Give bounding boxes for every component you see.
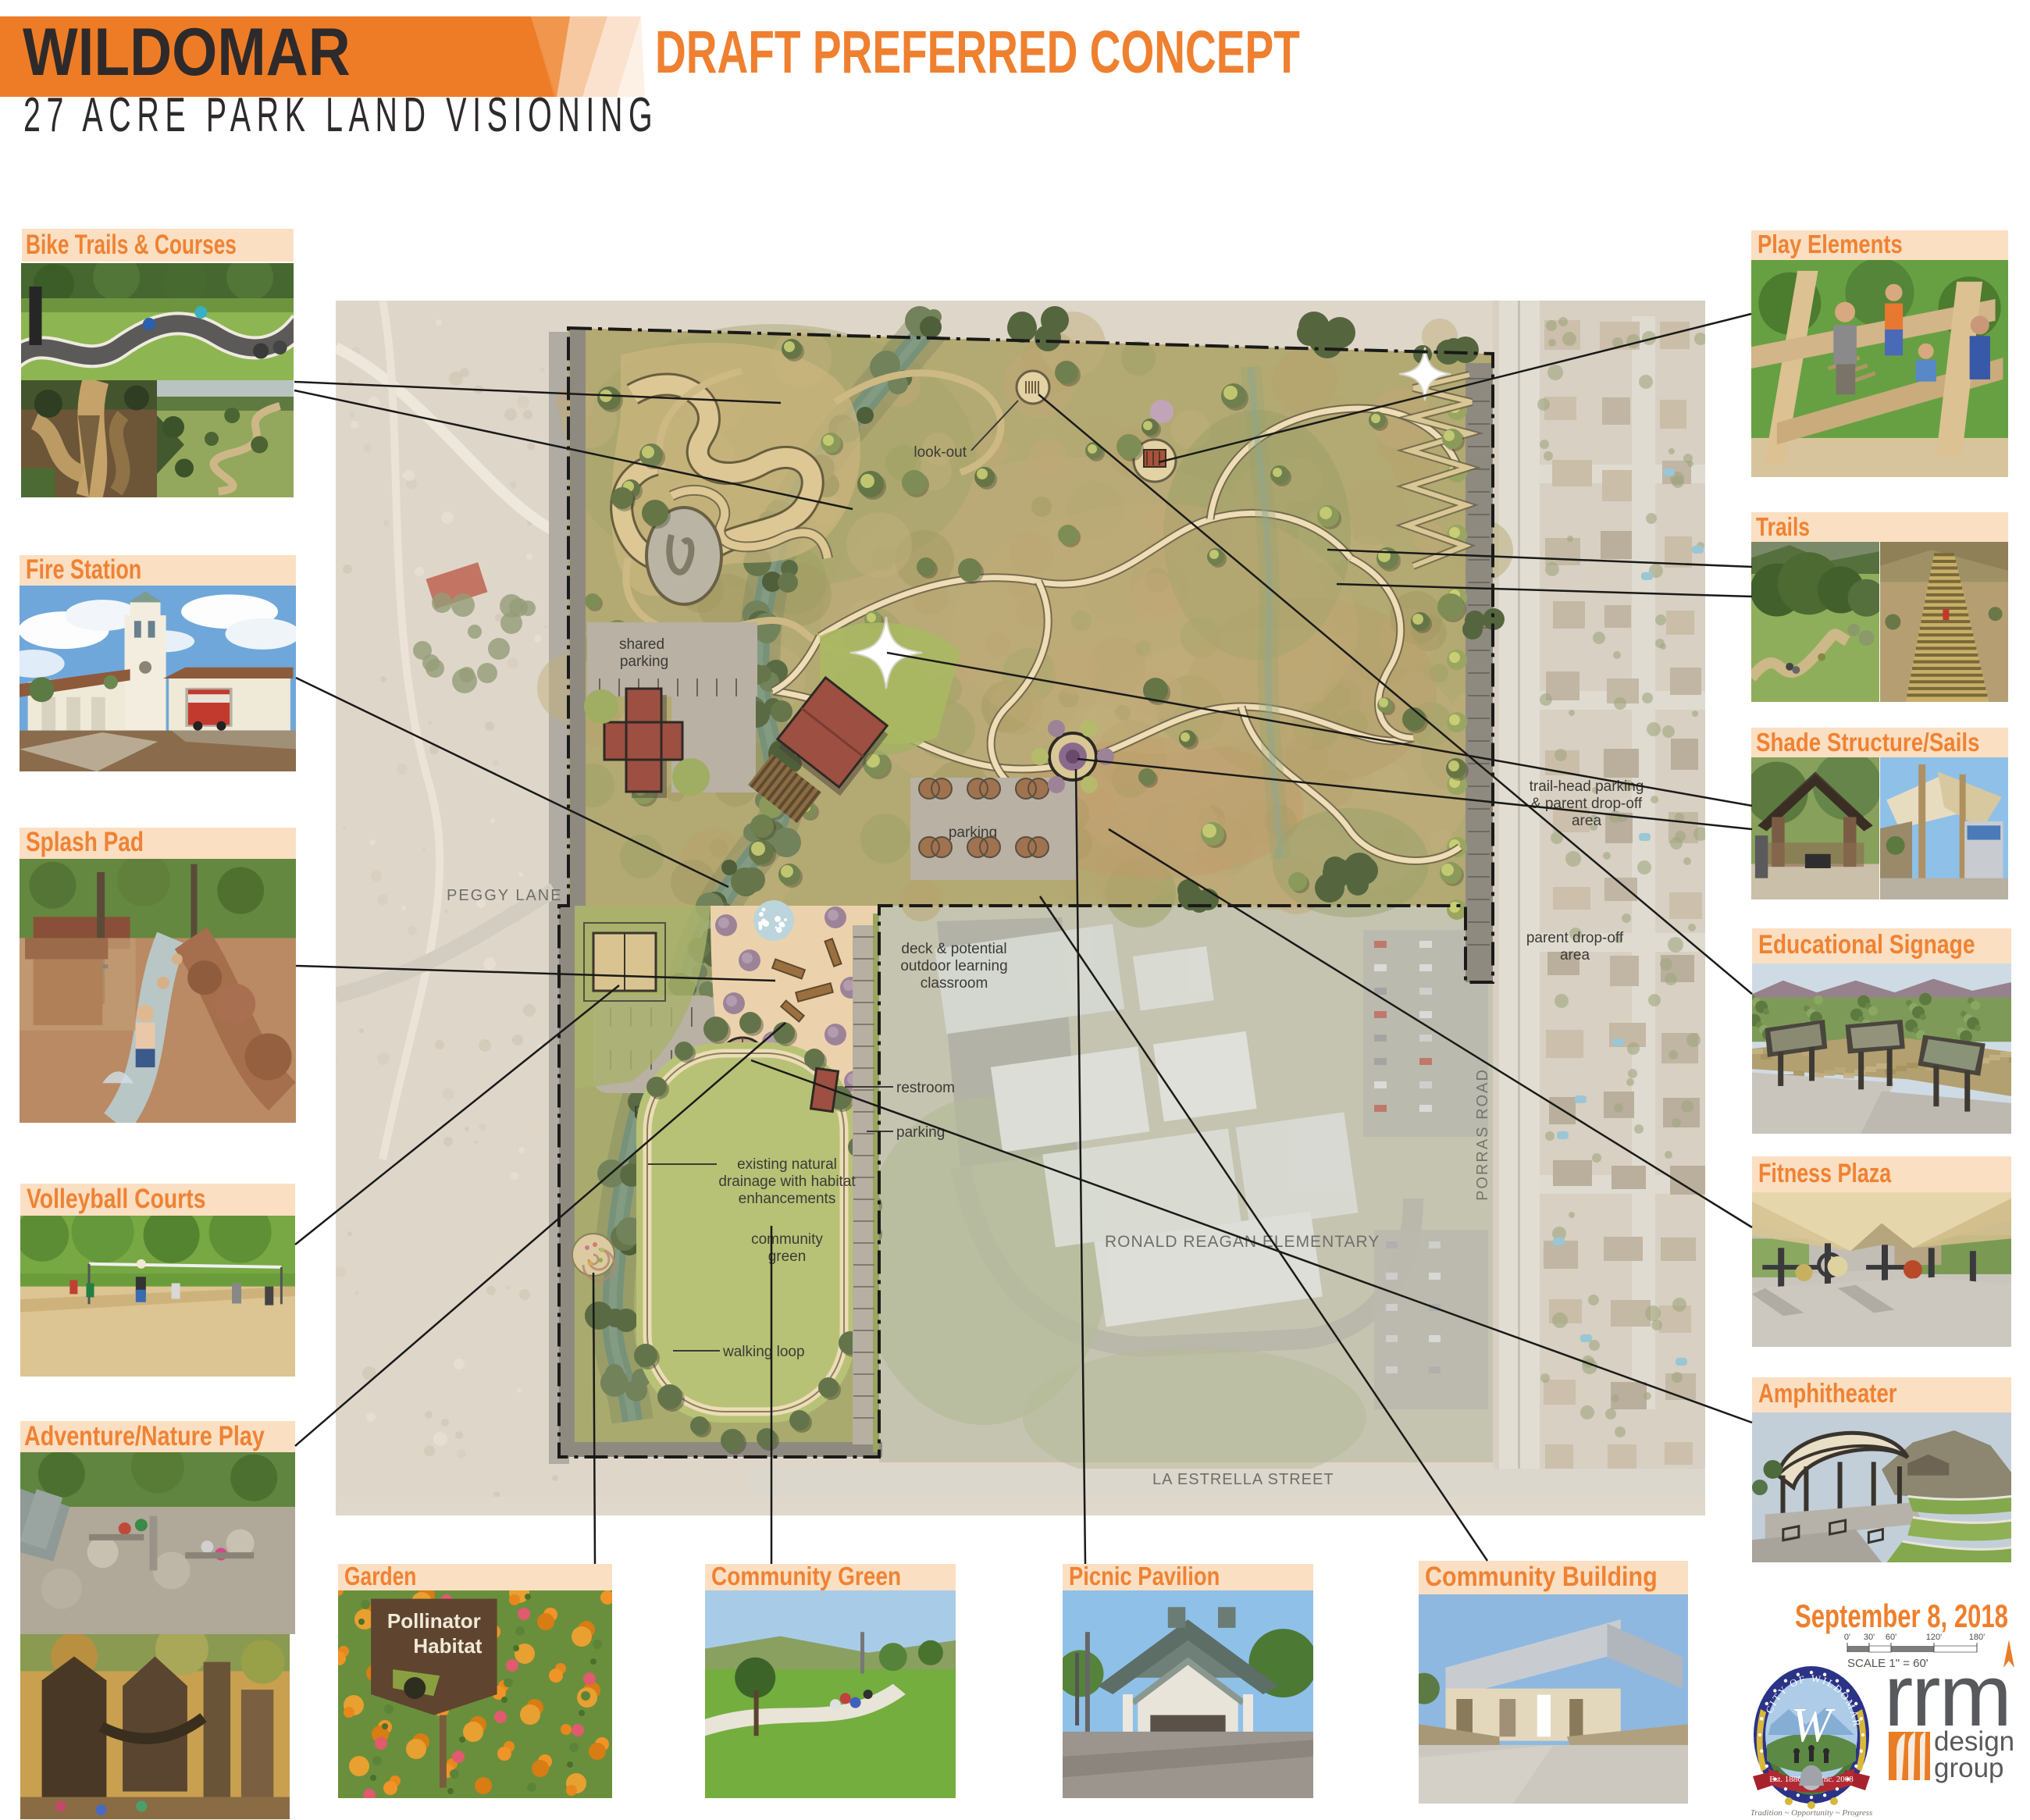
svg-text:0': 0' [1844,1633,1850,1642]
svg-text:60': 60' [1886,1633,1896,1642]
svg-text:Tradition ~ Opportunity ~ Prog: Tradition ~ Opportunity ~ Progress [1751,1808,1872,1817]
svg-text:120': 120' [1926,1633,1942,1642]
svg-text:180': 180' [1969,1633,1985,1642]
svg-text:30': 30' [1864,1633,1875,1642]
svg-text:W: W [1791,1699,1836,1752]
